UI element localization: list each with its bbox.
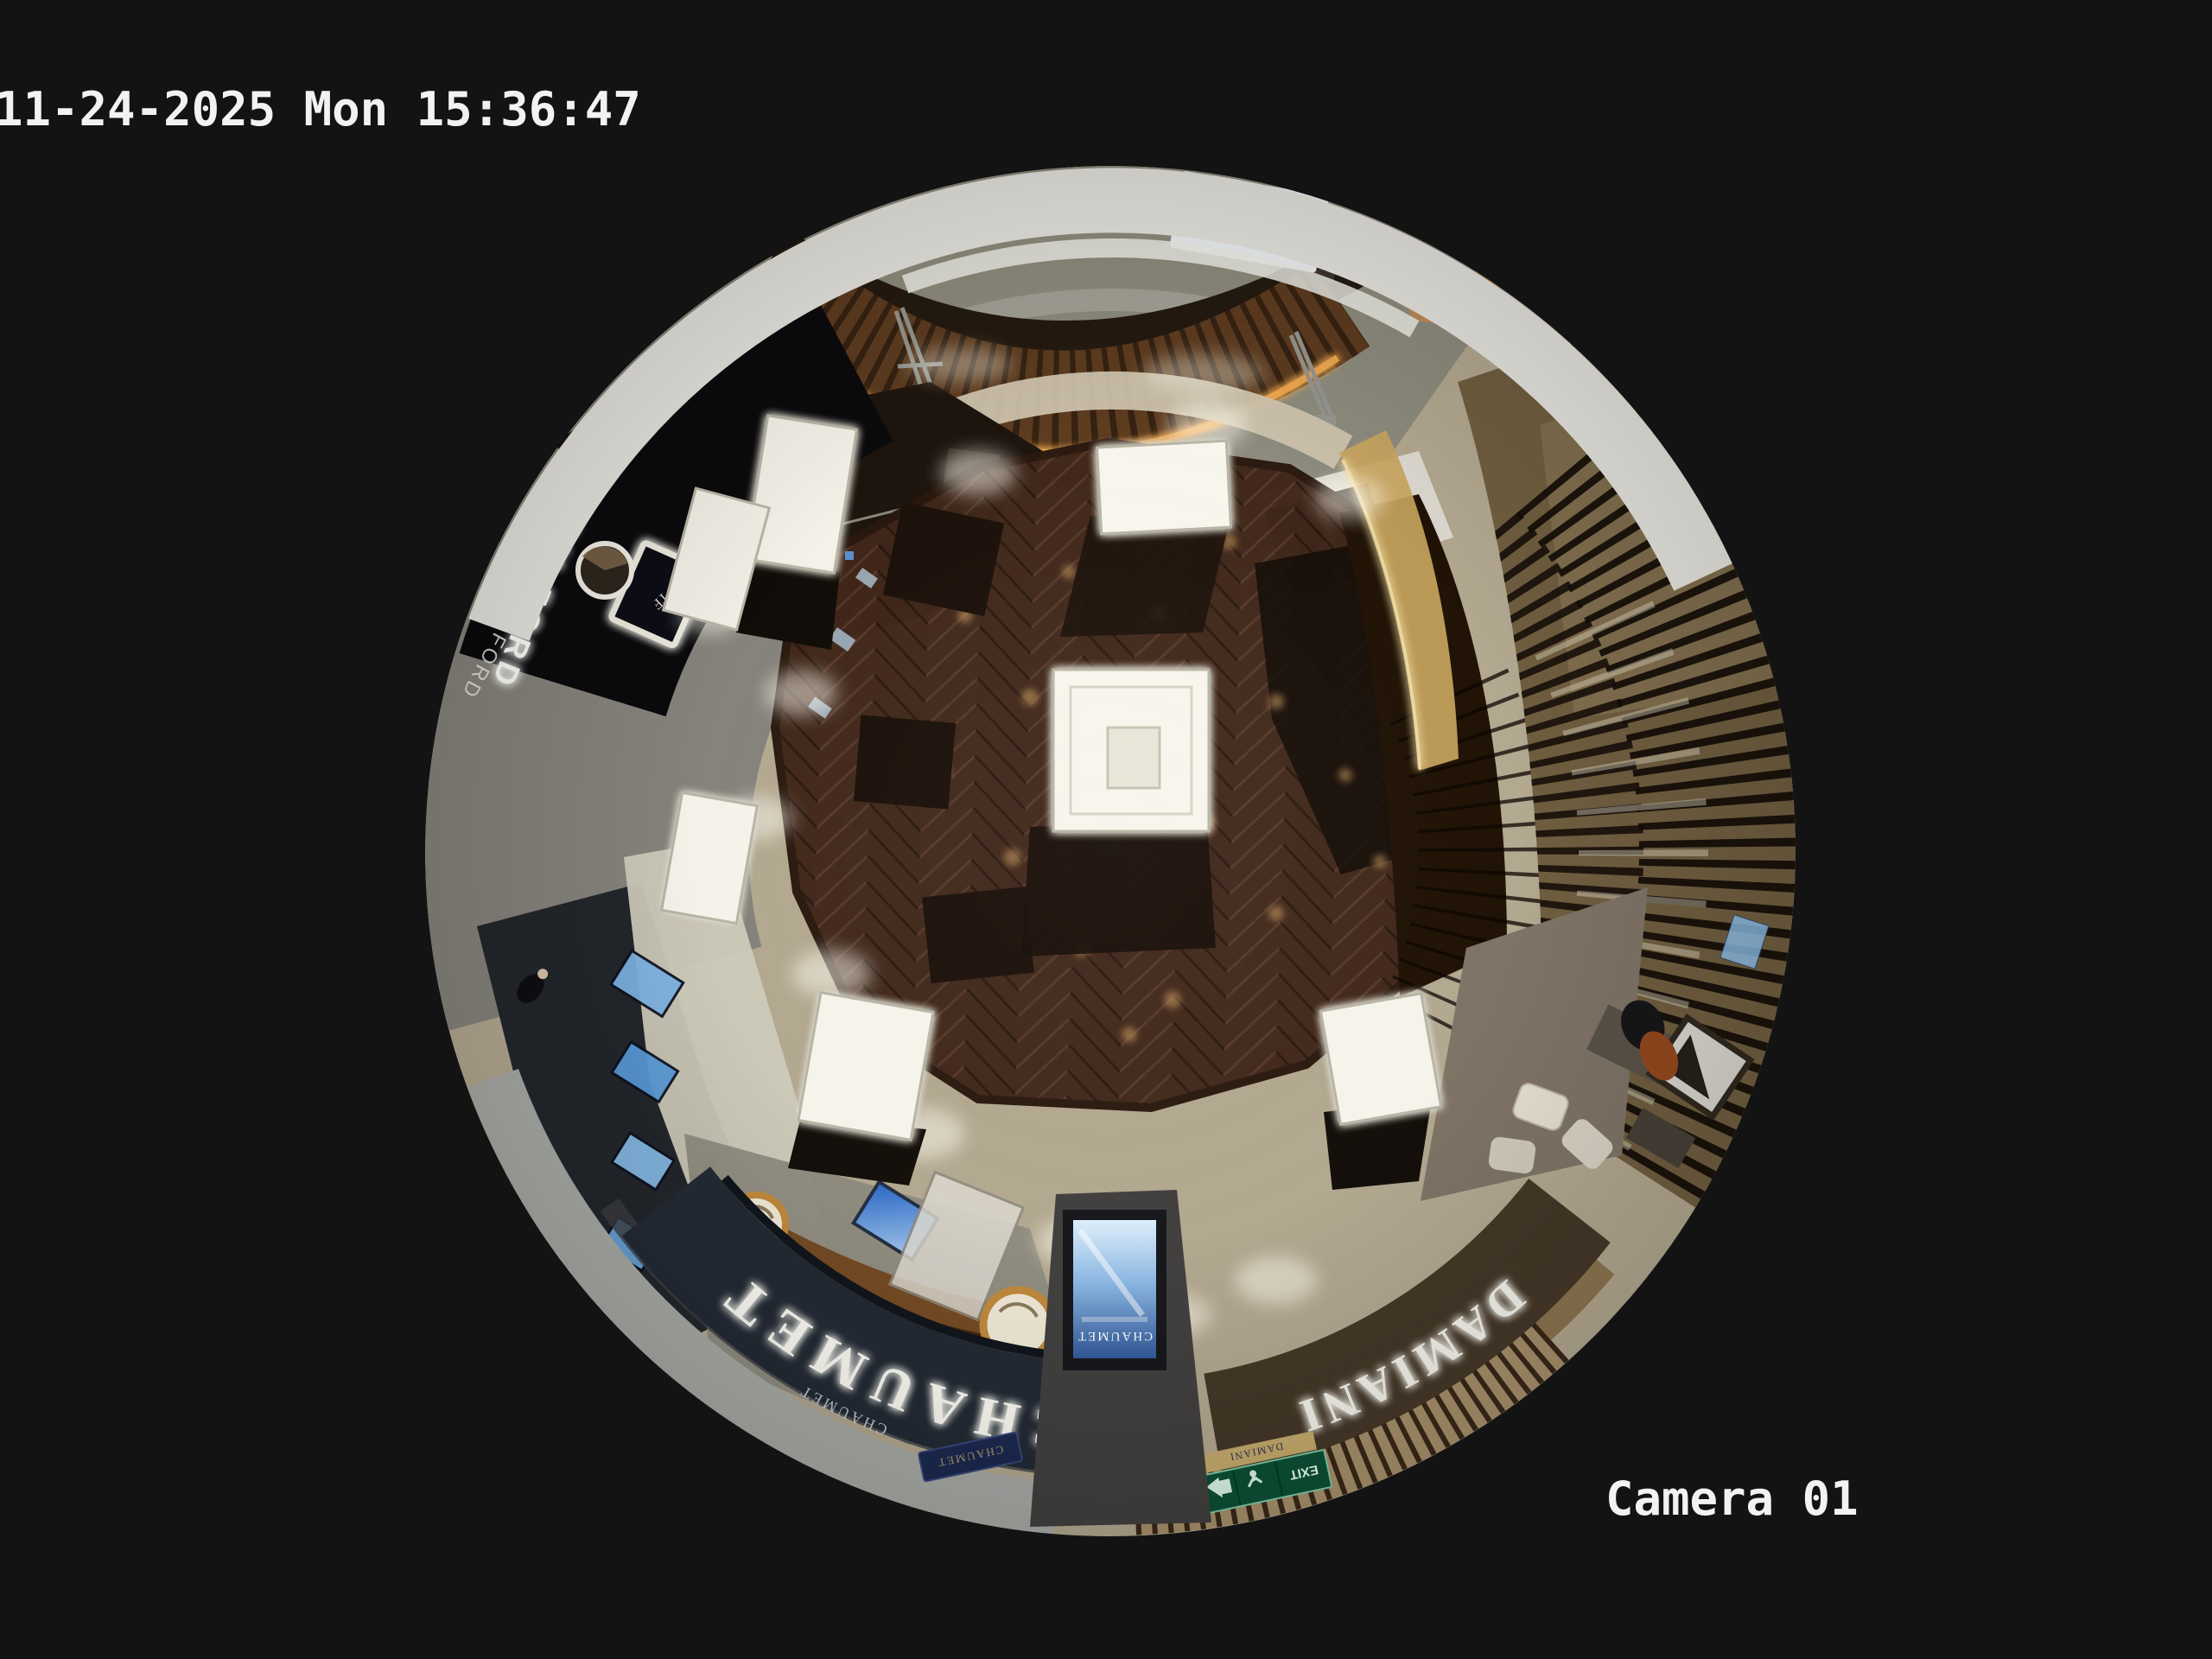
cctv-frame: TOM FORD TOM FORD TF: [0, 0, 2212, 1659]
round-mirror: [578, 543, 632, 597]
osd-timestamp: 11-24-2025 Mon 15:36:47: [0, 86, 641, 133]
central-display-case: [1053, 670, 1209, 831]
osd-camera-label: Camera 01: [1605, 1476, 1859, 1522]
fisheye-camera-view: TOM FORD TOM FORD TF: [425, 166, 1796, 1536]
ad-screen-brand-text: CHAUMET: [1077, 1329, 1153, 1343]
display-case: [1320, 994, 1440, 1124]
fisheye-scene: TOM FORD TOM FORD TF: [425, 166, 1796, 1536]
chair: [1488, 1136, 1537, 1175]
display-case: [1096, 441, 1230, 534]
display-case: [798, 993, 933, 1141]
